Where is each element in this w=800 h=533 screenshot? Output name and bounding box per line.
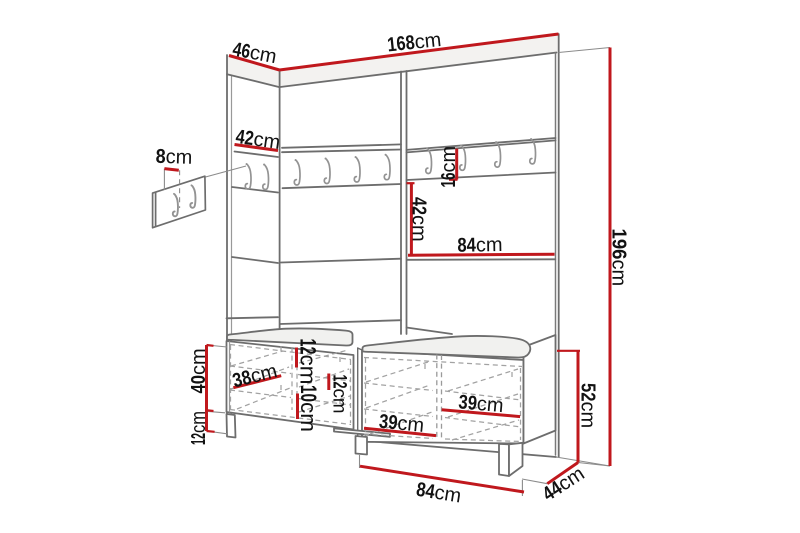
- svg-text:39cm: 39cm: [458, 391, 505, 417]
- svg-text:12cm: 12cm: [296, 339, 321, 385]
- svg-text:8cm: 8cm: [155, 146, 192, 169]
- svg-text:42cm: 42cm: [407, 197, 429, 242]
- svg-text:84cm: 84cm: [457, 234, 503, 257]
- svg-text:196cm: 196cm: [608, 229, 630, 287]
- svg-text:40cm: 40cm: [188, 348, 210, 393]
- svg-text:39cm: 39cm: [378, 411, 425, 437]
- svg-text:10cm: 10cm: [296, 385, 321, 432]
- svg-text:16cm: 16cm: [438, 146, 460, 188]
- svg-text:12cm: 12cm: [329, 375, 350, 414]
- svg-text:52cm: 52cm: [577, 383, 599, 428]
- svg-text:12cm: 12cm: [188, 411, 210, 445]
